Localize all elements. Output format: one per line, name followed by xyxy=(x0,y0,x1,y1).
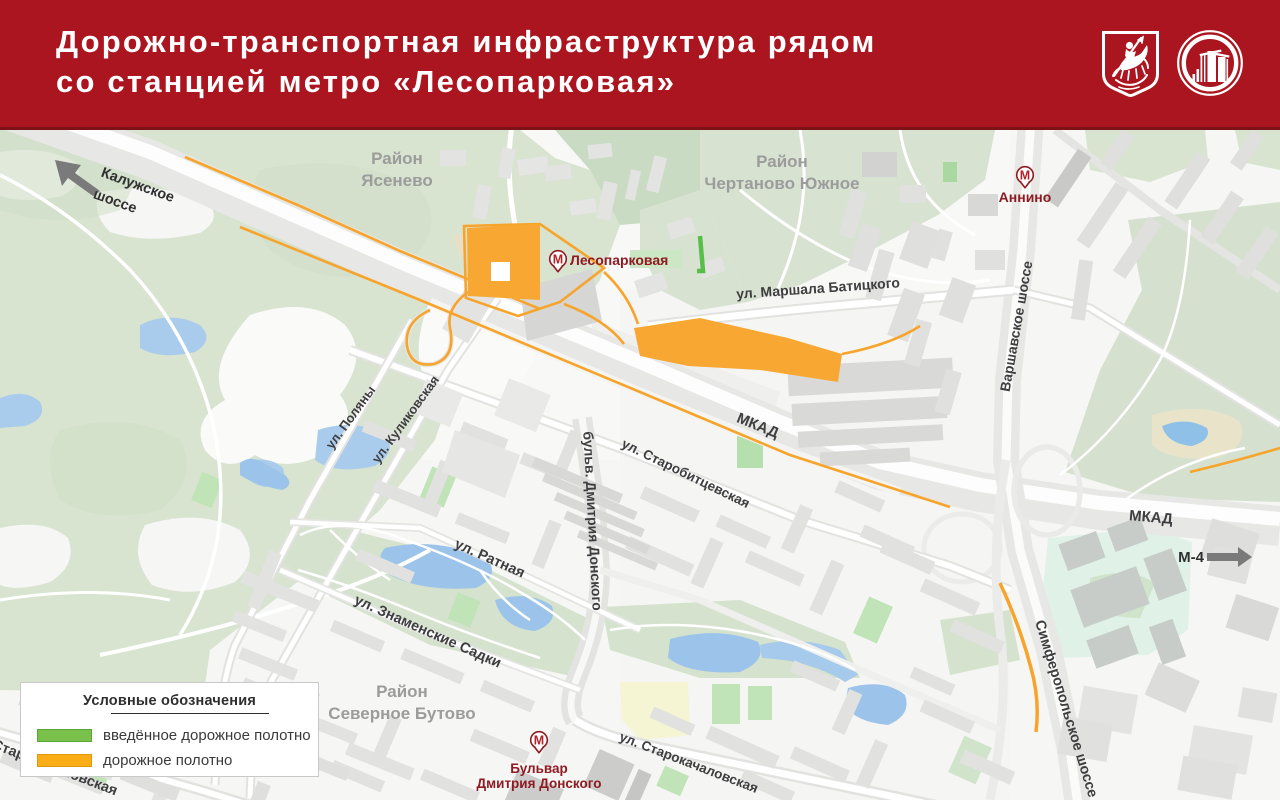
svg-text:Район: Район xyxy=(376,682,428,701)
svg-text:Северное Бутово: Северное Бутово xyxy=(328,704,475,723)
svg-text:Ясенево: Ясенево xyxy=(361,171,432,190)
svg-text:Район: Район xyxy=(371,149,423,168)
svg-text:Дмитрия Донского: Дмитрия Донского xyxy=(477,776,602,791)
svg-text:Бульвар: Бульвар xyxy=(510,761,568,776)
svg-text:М-4: М-4 xyxy=(1178,549,1204,566)
svg-text:М: М xyxy=(1020,169,1030,183)
svg-text:Аннино: Аннино xyxy=(999,189,1052,205)
svg-text:Чертаново Южное: Чертаново Южное xyxy=(704,174,859,193)
svg-text:Район: Район xyxy=(756,152,808,171)
svg-text:М: М xyxy=(553,253,563,267)
svg-text:М: М xyxy=(534,734,544,748)
svg-text:Лесопарковая: Лесопарковая xyxy=(570,252,668,268)
